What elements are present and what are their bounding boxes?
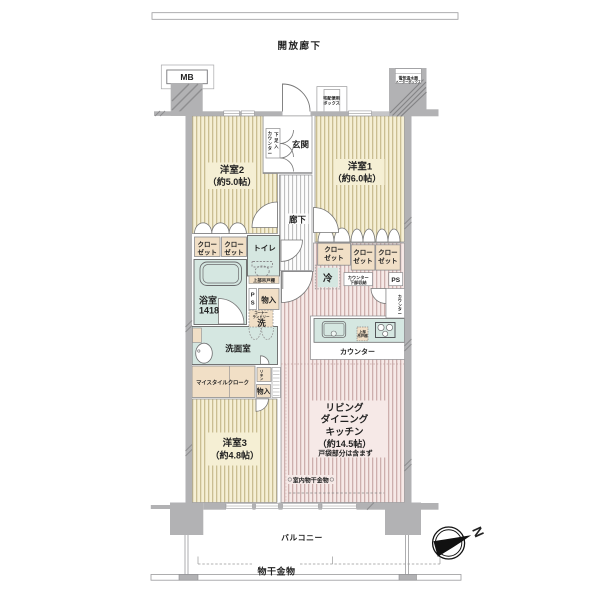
svg-text:ー: ー <box>398 311 402 316</box>
svg-text:クロー: クロー <box>353 248 373 257</box>
svg-text:PS: PS <box>391 277 400 284</box>
svg-text:ン: ン <box>260 377 264 381</box>
svg-text:ゼット: ゼット <box>353 256 373 265</box>
svg-text:開放廊下: 開放廊下 <box>277 40 321 52</box>
svg-text:クロー: クロー <box>197 240 217 249</box>
svg-text:物干金物: 物干金物 <box>257 566 295 577</box>
svg-text:P: P <box>251 293 255 299</box>
svg-text:リビング: リビング <box>325 402 364 414</box>
svg-text:玄関: 玄関 <box>292 140 309 150</box>
svg-text:クロー: クロー <box>224 240 244 249</box>
svg-text:物入: 物入 <box>261 295 276 305</box>
svg-text:廊下: 廊下 <box>289 214 307 224</box>
svg-text:カウンター: カウンター <box>340 347 375 356</box>
svg-text:S: S <box>251 301 255 307</box>
svg-text:（約6.0帖）: （約6.0帖） <box>333 173 382 184</box>
svg-text:バルコニー: バルコニー <box>281 534 323 543</box>
svg-text:吊戸棚: 吊戸棚 <box>357 333 368 338</box>
svg-text:下部収納: 下部収納 <box>350 279 367 286</box>
svg-text:ー: ー <box>268 151 273 156</box>
svg-text:（約5.0帖）: （約5.0帖） <box>208 176 257 187</box>
svg-text:下: 下 <box>274 131 279 138</box>
svg-text:洋室3: 洋室3 <box>223 437 247 449</box>
svg-text:戸袋部分は含まず: 戸袋部分は含まず <box>318 448 373 457</box>
svg-text:ゼット: ゼット <box>378 256 398 265</box>
svg-text:室内物干金物: 室内物干金物 <box>293 476 329 484</box>
svg-text:1418: 1418 <box>199 306 219 316</box>
svg-text:浴室: 浴室 <box>199 295 217 306</box>
svg-text:メーターボックス: メーターボックス <box>396 79 421 84</box>
svg-text:ゼット: ゼット <box>197 248 217 257</box>
svg-text:ダイニング: ダイニング <box>321 413 369 425</box>
svg-text:ゼット: ゼット <box>224 248 244 257</box>
svg-text:冷: 冷 <box>323 273 333 285</box>
svg-text:マイスタイルクローク: マイスタイルクローク <box>196 379 249 387</box>
svg-text:物入: 物入 <box>257 387 271 396</box>
svg-text:ゼット: ゼット <box>324 253 344 262</box>
svg-text:クロー: クロー <box>378 248 398 257</box>
svg-text:足: 足 <box>274 137 279 144</box>
svg-text:洋室1: 洋室1 <box>348 161 373 173</box>
svg-text:MB: MB <box>180 72 193 82</box>
svg-text:（約14.5帖）: （約14.5帖） <box>318 438 372 449</box>
svg-text:洗面室: 洗面室 <box>225 344 251 354</box>
svg-text:洗: 洗 <box>257 318 266 328</box>
svg-text:トイレ: トイレ <box>253 244 276 253</box>
svg-text:（約4.8帖）: （約4.8帖） <box>211 450 260 461</box>
svg-text:上部吊戸棚: 上部吊戸棚 <box>253 277 276 284</box>
svg-text:キッチン: キッチン <box>325 427 363 438</box>
svg-text:クロー: クロー <box>324 245 344 254</box>
svg-text:ボックス: ボックス <box>323 100 340 107</box>
svg-text:洋室2: 洋室2 <box>220 164 244 176</box>
